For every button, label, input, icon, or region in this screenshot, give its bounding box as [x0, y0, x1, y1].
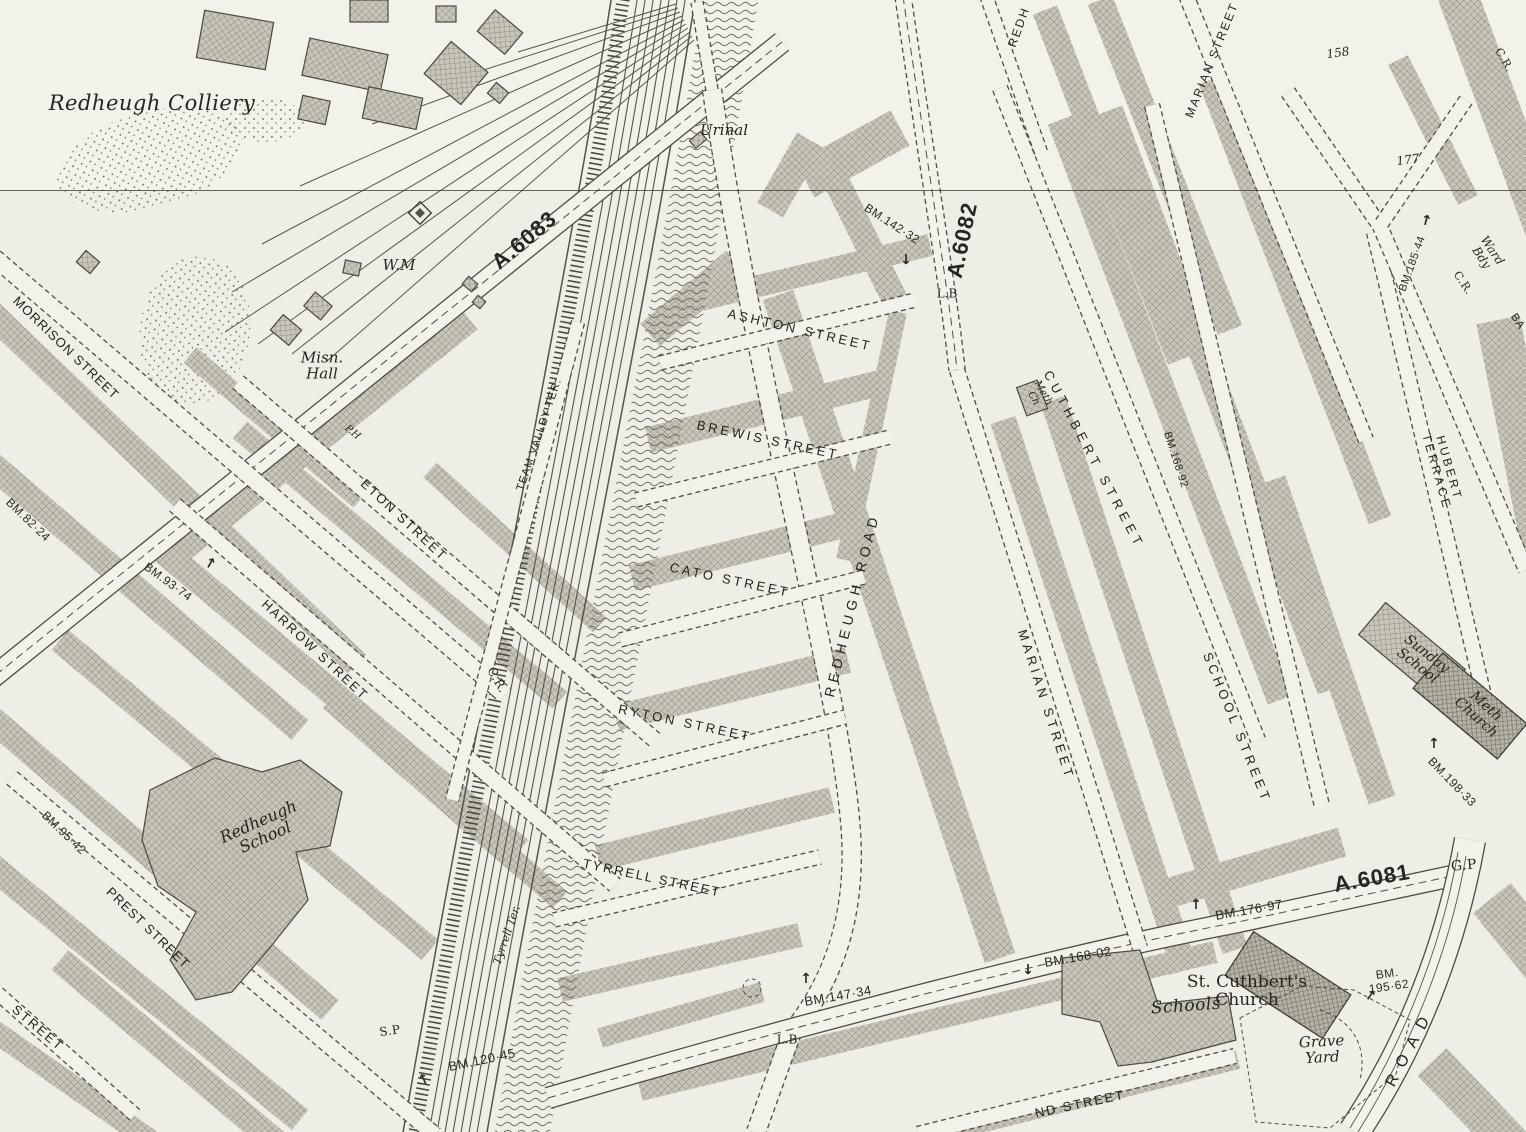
map-label-wm: W.M: [383, 258, 416, 274]
benchmark-arrow-icon: ↑: [1361, 986, 1380, 1006]
map-label-bm-93-74: BM.93·74: [142, 560, 195, 603]
map-label-marian-street-top: MARIAN STREET: [1183, 0, 1241, 119]
benchmark-arrow-icon: ↑: [900, 250, 912, 266]
map-label-street-left: STREET: [9, 1002, 66, 1053]
map-label-tyrrell-ter: Tyrrell Ter.: [492, 904, 523, 966]
map-label-cr-rail: C.R.: [485, 665, 510, 695]
map-label-meth-ch: Meth Ch: [1022, 379, 1053, 413]
map-label-brewis-street: BREWIS STREET: [696, 418, 841, 462]
map-label-ashton-street: ASHTON STREET: [726, 307, 873, 354]
map-label-sunday-school: Sunday School: [1392, 632, 1452, 688]
map-label-schools: Schools: [1150, 996, 1221, 1019]
map-label-harrow-street: HARROW STREET: [259, 597, 371, 703]
map-label-nd-street: ND STREET: [1034, 1088, 1127, 1120]
map-label-urinal: Urinal: [700, 123, 748, 139]
map-label-cr-topright: C.R.: [1493, 46, 1516, 74]
map-label-lb-bottom: L.B: [777, 1034, 798, 1047]
map-viewport: Redheugh CollieryUrinalW.MMisn. HallP.HA…: [0, 0, 1526, 1132]
map-label-st-cuthberts-church: St. Cuthbert's Church: [1187, 974, 1307, 1010]
map-label-sp: S.P: [379, 1023, 402, 1038]
map-label-gp: G.P: [1450, 858, 1477, 875]
map-label-school-street: SCHOOL STREET: [1200, 651, 1273, 806]
map-label-a6083: A.6083: [487, 206, 561, 273]
map-label-cato-street: CATO STREET: [669, 561, 792, 600]
map-label-redheugh-school: Redheugh School: [218, 798, 307, 862]
map-label-grave-yard: Grave Yard: [1298, 1033, 1345, 1067]
map-label-bm-198-33: BM.198·33: [1426, 755, 1479, 809]
map-label-bm-185-44: BM.185·44: [1398, 235, 1429, 294]
map-label-team-valley-ter: TEAM VALLEY TER.: [515, 377, 564, 492]
map-label-misn-hall: Misn. Hall: [301, 350, 343, 382]
benchmark-arrow-icon: ↑: [201, 554, 219, 574]
map-label-eton-street: ETON STREET: [358, 477, 450, 564]
map-label-lb-top: L.B: [937, 288, 958, 301]
map-label-bm-120-45: BM.120·45: [447, 1046, 516, 1074]
map-label-ba-partial: BA: [1508, 312, 1526, 332]
map-label-num-158: 158: [1326, 45, 1350, 61]
benchmark-arrow-icon: ↑: [800, 971, 812, 987]
benchmark-arrow-icon: ↑: [1418, 212, 1433, 230]
map-label-bm-95-42: BM.95·42: [39, 809, 88, 857]
map-label-num-177: 177: [1396, 152, 1420, 168]
map-label-bm-168-02: BM.168·02: [1043, 944, 1112, 969]
map-label-ward-bdy: Ward Bdy: [1466, 231, 1509, 277]
map-label-redheugh-road: REDHEUGH ROAD: [822, 511, 882, 698]
map-label-bm-142-32: BM.142·32: [862, 202, 922, 247]
map-label-road-right: ROAD: [1383, 1006, 1438, 1090]
benchmark-arrow-icon: ↑: [1428, 736, 1440, 752]
map-label-a6081: A.6081: [1332, 860, 1412, 896]
benchmark-arrow-icon: ↑: [1022, 960, 1034, 976]
map-label-tyrrell-street: TYRRELL STREET: [582, 857, 723, 900]
map-label-ph: P.H: [342, 424, 361, 443]
map-label-hubert-terrace: HUBERT TERRACE: [1419, 427, 1466, 514]
map-label-bm-147-34: BM.147·34: [803, 983, 872, 1008]
map-label-bm-168-92: BM.168·92: [1160, 430, 1189, 489]
map-label-cuthbert-street: CUTHBERT STREET: [1041, 368, 1147, 551]
map-label-redheugh-colliery: Redheugh Colliery: [49, 92, 256, 114]
map-labels-layer: Redheugh CollieryUrinalW.MMisn. HallP.HA…: [0, 0, 1526, 1132]
map-label-morrison-street: MORRISON STREET: [10, 294, 121, 402]
map-label-bm-176-97: BM.176·97: [1214, 897, 1283, 922]
map-label-ryton-street: RYTON STREET: [617, 702, 753, 744]
map-label-cr-right: C.R.: [1451, 269, 1475, 296]
map-label-prest-street: PREST STREET: [104, 885, 193, 971]
benchmark-arrow-icon: ↑: [415, 1070, 432, 1089]
map-label-marian-street-mid: MARIAN STREET: [1015, 628, 1077, 782]
map-tile-seam: [0, 190, 1526, 191]
map-label-redh-partial: REDH: [1006, 5, 1032, 49]
benchmark-arrow-icon: ↑: [1190, 897, 1202, 913]
map-label-meth-church: Meth Church: [1452, 684, 1511, 741]
map-label-bm-82-24: BM.82·24: [3, 496, 52, 544]
map-label-a6082: A.6082: [943, 200, 982, 280]
